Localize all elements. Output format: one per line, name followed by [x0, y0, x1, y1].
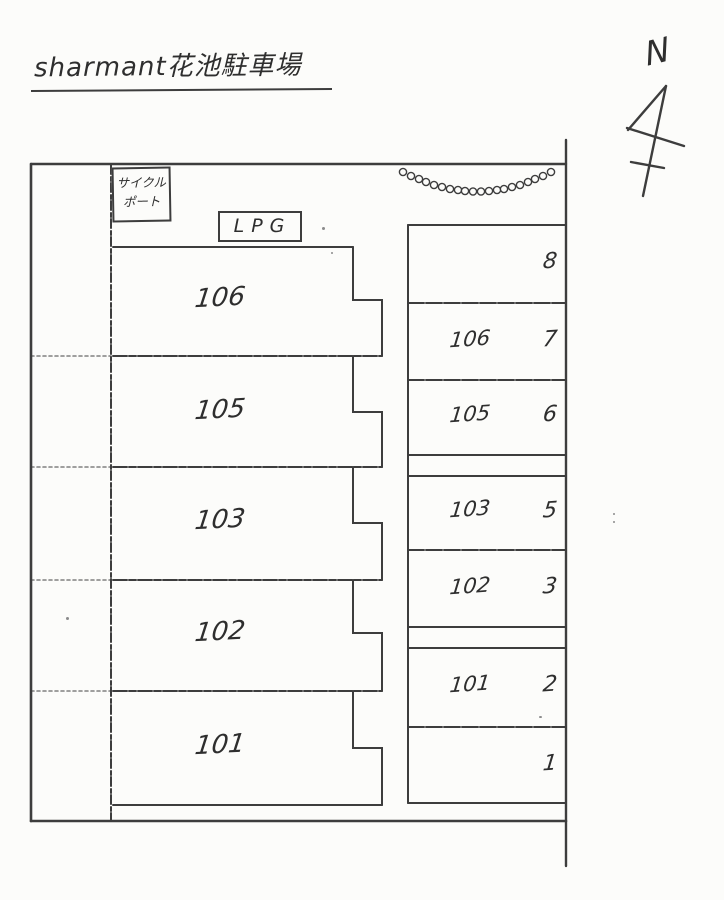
compass-north-label: N: [643, 29, 672, 74]
right-stall-number-6: 6: [530, 401, 569, 428]
right-stall-unit-102: 102: [428, 571, 511, 601]
right-stall-number-7: 7: [530, 326, 569, 353]
right-stall-unit-105: 105: [428, 399, 511, 429]
chain-decoration: [399, 168, 554, 195]
right-stall-number-8: 8: [530, 248, 569, 275]
right-stall-unit-103: 103: [428, 494, 511, 524]
right-stall-number-5: 5: [530, 497, 569, 524]
page-title: sharmant花池駐車場: [34, 45, 302, 85]
scan-speck: [322, 227, 325, 230]
lpg-label: LPG: [234, 215, 292, 237]
parking-map-document: sharmant花池駐車場 N: [0, 0, 724, 900]
left-stall-label-106: 106: [168, 280, 272, 315]
title-underline: [31, 88, 332, 92]
cycle-port-label-line1: サイクル: [114, 173, 169, 193]
scan-speck: [331, 252, 333, 254]
cycle-port-label-line2: ポート: [114, 192, 169, 212]
right-stall-number-2: 2: [530, 671, 569, 698]
cycle-port-box: サイクル ポート: [112, 166, 172, 222]
right-stall-number-1: 1: [530, 750, 569, 777]
scan-speck: [613, 521, 615, 523]
scan-speck: [539, 716, 542, 718]
right-stall-unit-101: 101: [428, 669, 511, 699]
left-stall-label-102: 102: [168, 614, 272, 649]
right-stall-unit-106: 106: [428, 324, 511, 354]
lpg-box: LPG: [218, 211, 302, 242]
left-stall-label-103: 103: [168, 502, 272, 537]
left-stall-label-105: 105: [168, 392, 272, 427]
left-stall-label-101: 101: [168, 727, 272, 762]
scan-speck: [613, 513, 615, 515]
site-plan-linework: [0, 0, 724, 900]
outer-boundary: [31, 164, 566, 821]
right-stall-number-3: 3: [530, 573, 569, 600]
scan-speck: [66, 617, 69, 620]
north-arrow-icon: [627, 86, 684, 196]
